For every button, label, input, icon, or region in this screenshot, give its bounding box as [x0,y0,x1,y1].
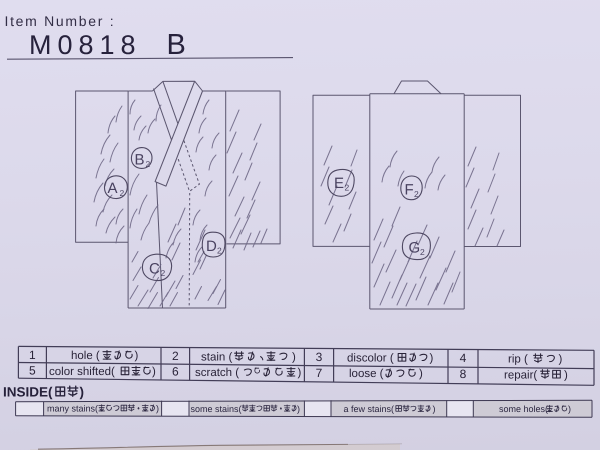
svg-text:2: 2 [161,268,166,278]
svg-text:2: 2 [172,349,179,363]
svg-text:hole (: hole ( [71,350,100,362]
svg-text:F: F [405,182,414,199]
svg-text:2: 2 [420,247,425,257]
svg-text:): ) [559,354,563,366]
svg-text:repair(: repair( [504,369,537,381]
svg-text:): ) [292,351,296,363]
svg-text:2: 2 [345,183,350,193]
svg-text:): ) [135,350,139,362]
svg-text:some stains(: some stains( [191,404,242,414]
svg-text:scratch (: scratch ( [195,367,239,379]
svg-text:2: 2 [414,189,419,199]
svg-text:): ) [568,404,571,414]
svg-text:D: D [206,238,217,255]
svg-text:6: 6 [172,365,179,379]
svg-text:Item Number :: Item Number : [5,13,116,29]
svg-text:some holes(: some holes( [499,404,548,414]
svg-text:4: 4 [460,351,467,365]
svg-text:): ) [152,366,156,378]
svg-text:color shifted(: color shifted( [49,366,115,378]
svg-text:stain (: stain ( [201,351,232,363]
svg-text:): ) [419,368,423,380]
svg-text:2: 2 [120,188,125,198]
svg-text:): ) [297,404,300,414]
svg-text:a few stains(: a few stains( [344,404,395,414]
svg-text:): ) [80,385,85,400]
svg-text:): ) [156,404,159,414]
svg-text:M0818: M0818 [29,30,142,60]
svg-text:rip (: rip ( [508,354,528,366]
svg-text:): ) [433,404,436,414]
svg-text:A: A [108,180,118,197]
svg-text:7: 7 [316,366,323,380]
svg-text:loose (: loose ( [349,368,384,380]
svg-text:8: 8 [460,367,467,381]
svg-text:1: 1 [29,348,36,362]
svg-text:G: G [409,240,421,257]
svg-text:E: E [334,175,344,192]
svg-text:INSIDE(: INSIDE( [3,385,53,400]
svg-text:): ) [430,352,434,364]
svg-text:many stains(: many stains( [47,404,98,414]
svg-text:5: 5 [29,364,36,378]
svg-text:3: 3 [316,350,323,364]
svg-text:): ) [564,369,568,381]
svg-text:): ) [298,367,302,379]
svg-text:2: 2 [217,246,222,256]
svg-text:discolor (: discolor ( [347,352,394,364]
svg-text:C: C [149,261,160,278]
svg-text:2: 2 [146,159,151,169]
svg-text:B: B [135,152,145,169]
svg-text:B: B [167,29,186,61]
